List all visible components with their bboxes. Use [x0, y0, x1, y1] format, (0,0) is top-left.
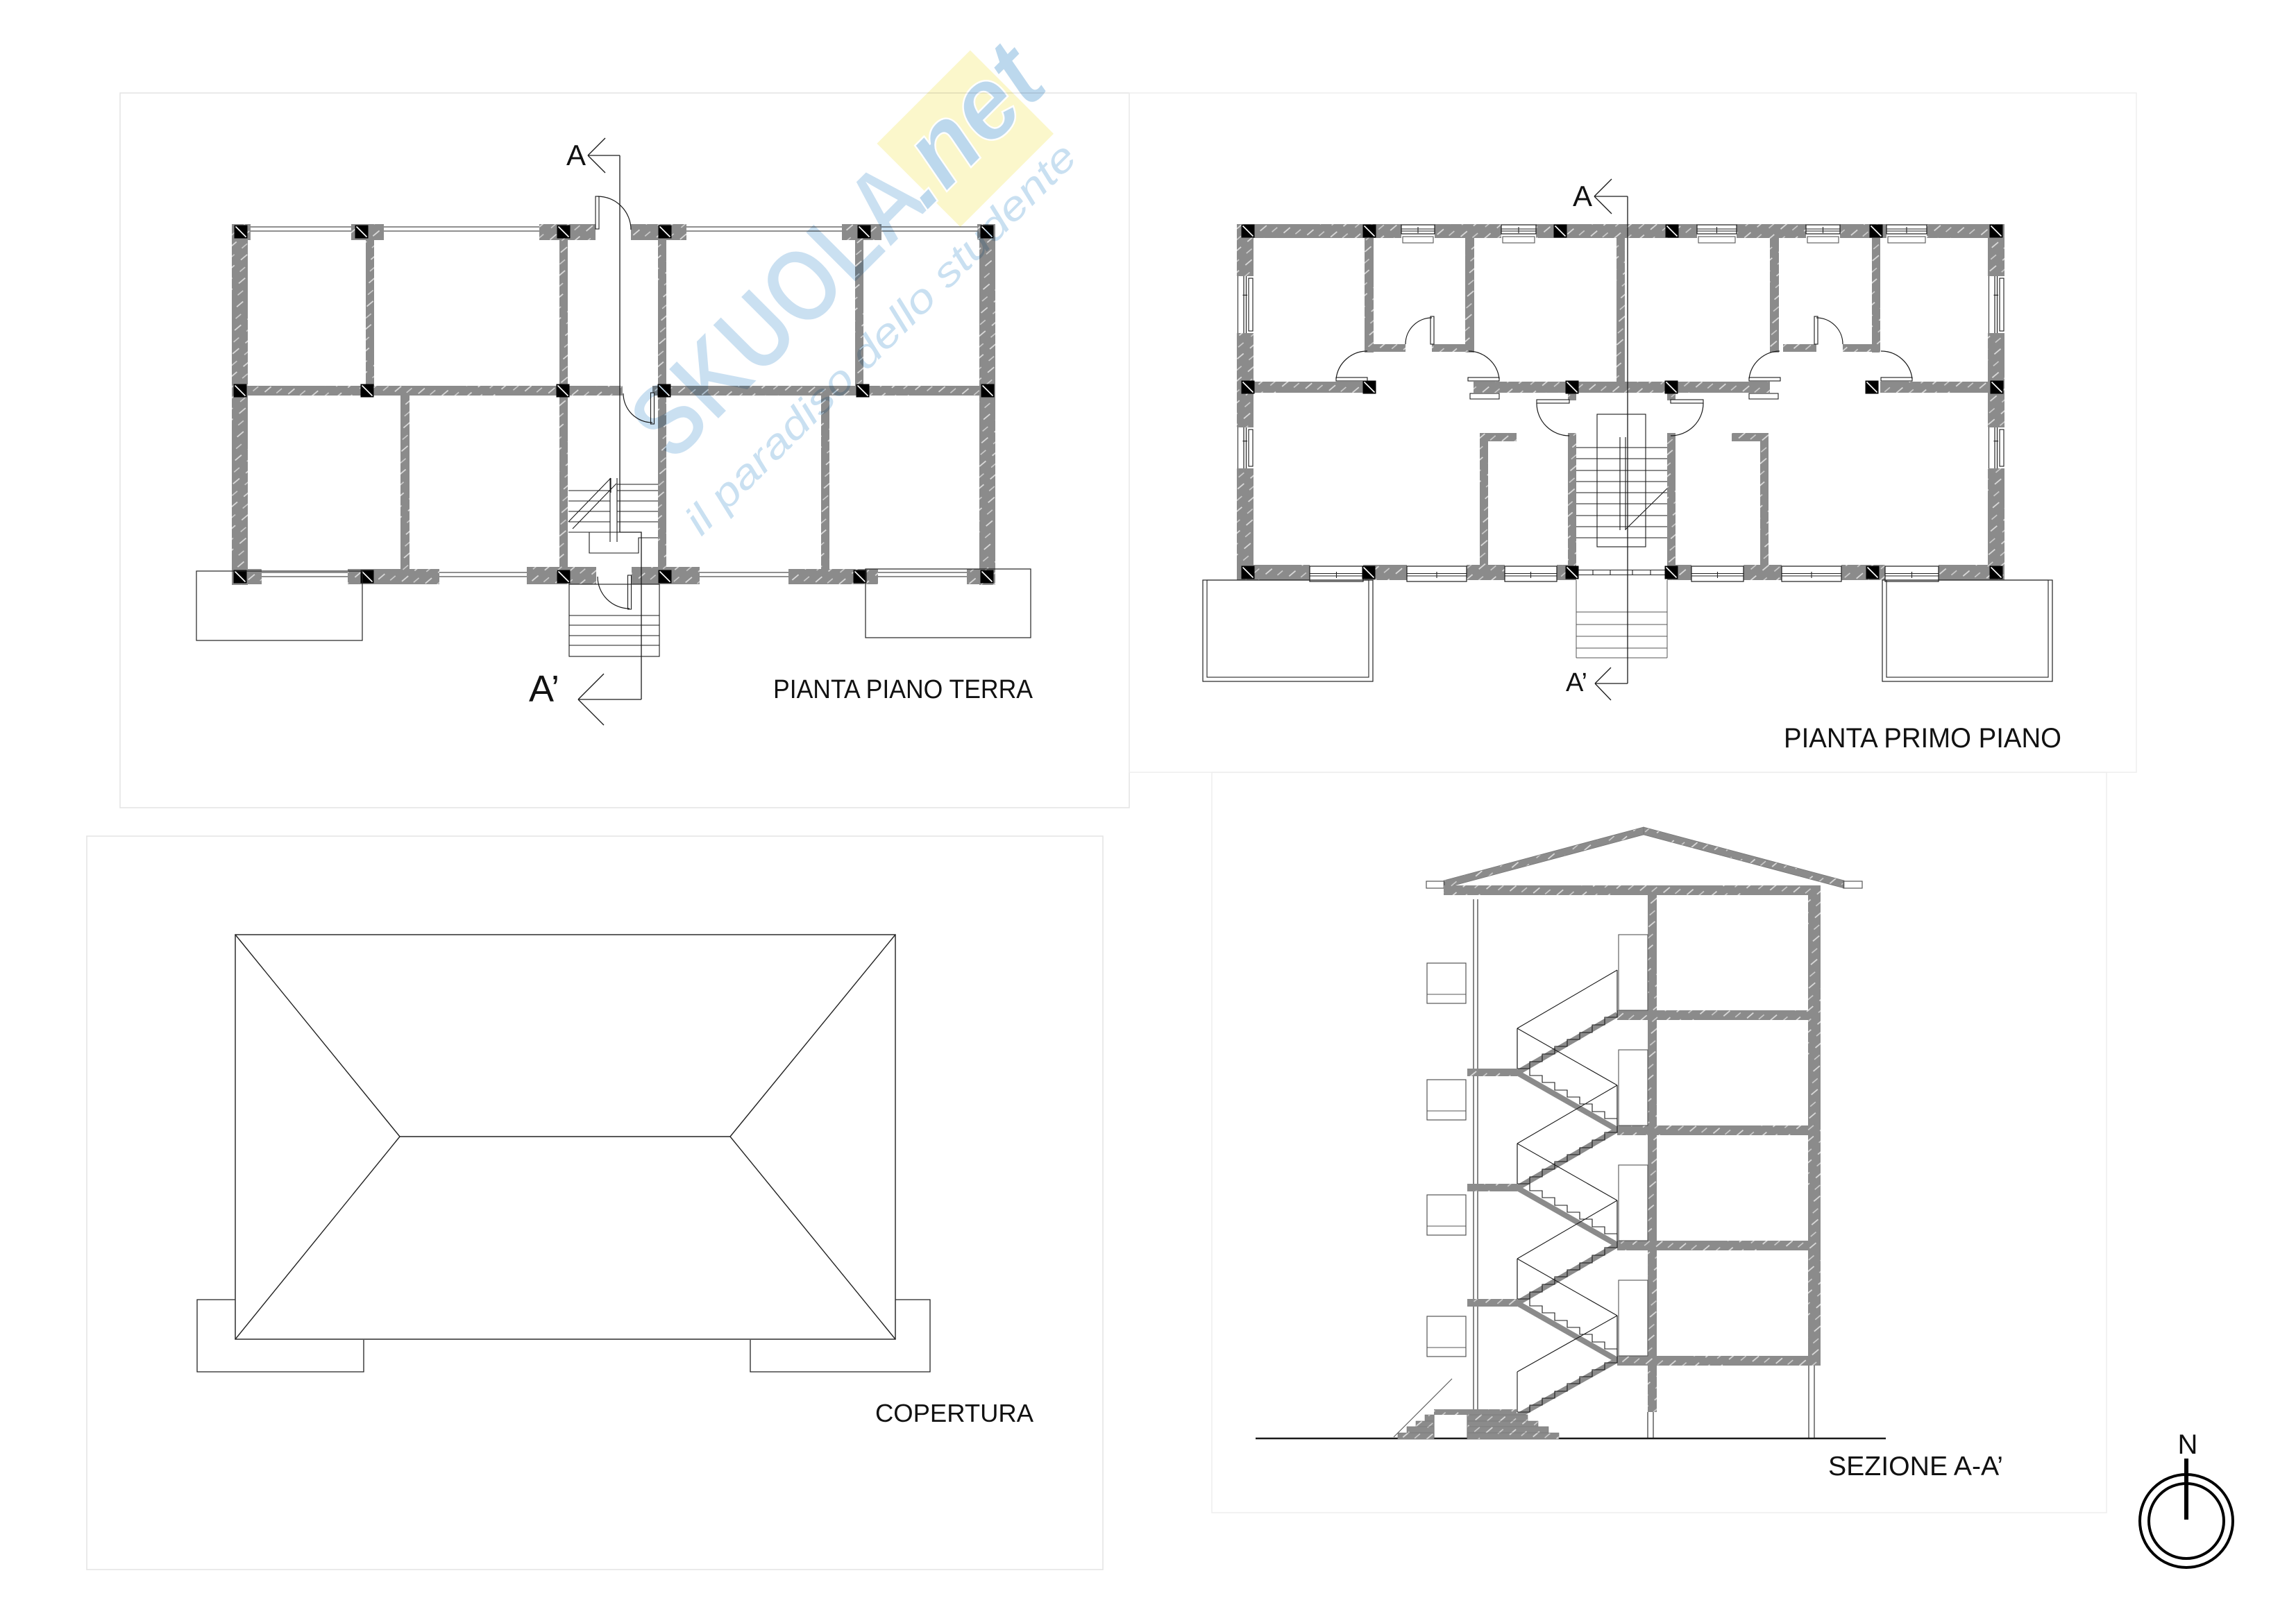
svg-text:A’: A’ [1566, 668, 1587, 697]
svg-text:PIANTA PIANO TERRA: PIANTA PIANO TERRA [773, 675, 1033, 704]
svg-text:PIANTA PRIMO PIANO: PIANTA PRIMO PIANO [1784, 723, 2061, 754]
svg-text:N: N [2178, 1429, 2198, 1460]
svg-text:SEZIONE A-A’: SEZIONE A-A’ [1828, 1452, 2003, 1481]
svg-text:A: A [566, 139, 586, 171]
svg-text:COPERTURA: COPERTURA [875, 1399, 1033, 1427]
svg-text:A’: A’ [529, 668, 559, 710]
svg-text:A: A [1573, 180, 1592, 212]
